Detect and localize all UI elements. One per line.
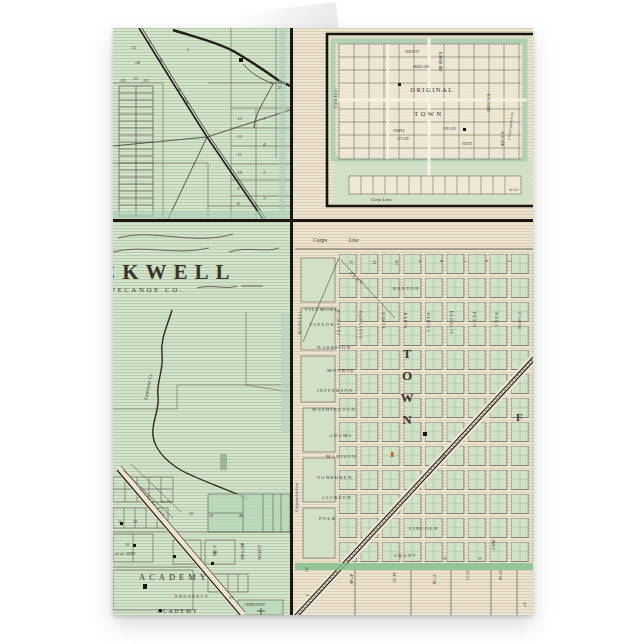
creek-name-label: Lauramie Cr. bbox=[143, 373, 154, 401]
letter-f-label: F bbox=[516, 411, 523, 423]
block-number: 10 bbox=[394, 260, 399, 265]
street-name: LINCOLN bbox=[409, 526, 438, 531]
sec-cor-label: Sec Cor bbox=[161, 500, 173, 504]
street-name: VANBUREN bbox=[317, 475, 353, 480]
section-number: 3 bbox=[263, 170, 266, 175]
section-numbers: 25 24 22 5 6 13 12 11 10 9 8 1 4 3 7 bbox=[131, 45, 266, 206]
section-number: 1 bbox=[263, 116, 265, 121]
town-letter: O bbox=[402, 368, 412, 383]
horner-add-label: HORNER ADD bbox=[438, 52, 442, 72]
lot-number: 39 bbox=[133, 519, 138, 524]
court-label: COURT bbox=[492, 539, 496, 550]
town-grid-drawing: Corpn Line Corporation Line CLAY BENTON … bbox=[293, 222, 533, 615]
long-lot-ladder bbox=[119, 86, 153, 216]
boundary-band-right bbox=[279, 28, 286, 211]
street-name: JEFFERSON bbox=[317, 388, 354, 393]
stockwell-map-drawing: CKWELL PECANOE CO. Lauramie Cr. bbox=[113, 222, 290, 615]
map-panel-town-grid: Corpn Line Corporation Line CLAY BENTON … bbox=[293, 222, 533, 615]
lot-number: 20 bbox=[304, 567, 309, 572]
town-letter: T bbox=[403, 346, 412, 361]
panel-divider-horizontal bbox=[113, 219, 533, 222]
street-name: MADISON bbox=[326, 454, 357, 459]
street-name: MAPLE bbox=[517, 311, 522, 329]
street-name: TENTH bbox=[381, 311, 386, 328]
lot-number: 34 35 bbox=[392, 572, 397, 583]
south-add-strip bbox=[349, 176, 521, 194]
south-boundary-band bbox=[295, 563, 533, 570]
lot-number: 10 bbox=[125, 542, 130, 547]
lot-number: 19 18 bbox=[498, 570, 503, 581]
justus-add-label: JUSTUS ADD bbox=[486, 94, 490, 113]
section-number: 22 bbox=[133, 76, 138, 81]
lot-number: 17 bbox=[522, 602, 527, 607]
county-subtitle: PECANOE CO. bbox=[113, 286, 184, 294]
second-add-label: 2ND ADD bbox=[443, 127, 457, 131]
street-name: FILLMORE bbox=[305, 307, 339, 312]
moon-add-label: MOON ADD bbox=[413, 65, 430, 69]
card-product-photo: E. & L. R.W. Cen Sec 32 AVE AVE 25 24 22… bbox=[0, 0, 644, 644]
section-number: 10 bbox=[237, 170, 242, 175]
south-label: SOUTH bbox=[462, 142, 473, 146]
corporation-line-left: Corporation Line bbox=[294, 482, 299, 512]
building-square bbox=[239, 58, 243, 62]
section-number: 11 bbox=[237, 152, 241, 157]
street-name: ELEVENTH bbox=[358, 310, 363, 337]
street-name: MANSELL bbox=[297, 310, 302, 335]
section-number: 8 bbox=[237, 201, 240, 206]
railroad-diagonal bbox=[117, 464, 245, 615]
section-number: 12 bbox=[237, 134, 242, 139]
town-letter: N bbox=[402, 412, 412, 427]
street-name: JACKSON bbox=[322, 495, 352, 500]
first-add-label: 1ST ADD bbox=[397, 137, 410, 141]
section-lines bbox=[113, 312, 290, 409]
township-map-drawing: E. & L. R.W. Cen Sec 32 AVE AVE 25 24 22… bbox=[113, 28, 290, 219]
red-building-mark bbox=[391, 452, 394, 457]
street-name: TAYLOR bbox=[309, 322, 335, 327]
panel-divider-vertical bbox=[290, 28, 293, 615]
section-number: 7 bbox=[263, 196, 266, 201]
temple-add-label: TEMPLE bbox=[393, 129, 405, 133]
north-st-label: NORTH ST bbox=[405, 50, 420, 54]
building-square bbox=[423, 432, 427, 436]
just-add-label: JUST ADD bbox=[500, 132, 504, 147]
street-name: SEVENTH bbox=[449, 310, 454, 334]
stream bbox=[173, 30, 290, 86]
lot-number: 23 bbox=[189, 511, 193, 516]
town-letter: W bbox=[401, 390, 414, 405]
section-number: 25 bbox=[131, 45, 136, 50]
cicero-st-label: CICERO ST bbox=[258, 545, 262, 560]
cen-sec-number: 32 bbox=[277, 85, 281, 90]
st-label: ST bbox=[443, 557, 447, 561]
map-panel-stockwell: CKWELL PECANOE CO. Lauramie Cr. bbox=[113, 222, 290, 615]
street-name: FIFTH bbox=[494, 311, 499, 326]
section-number: 5 bbox=[187, 47, 190, 52]
street-name: EIGHTH bbox=[426, 312, 431, 332]
town-title: CKWELL bbox=[113, 260, 237, 284]
lot-number: 47 46 bbox=[349, 574, 354, 585]
corp-line-bottom: Corp Line bbox=[371, 197, 392, 202]
sub-add-label: SUB & ADD bbox=[241, 542, 245, 560]
st-label: ST bbox=[478, 557, 482, 561]
lot-number: 20 21 bbox=[465, 570, 470, 580]
card-back-flap bbox=[121, 2, 338, 28]
original-town-drawing: ORIGINAL TOWN Corp Line Corporation Line… bbox=[293, 28, 533, 219]
hatched-lot bbox=[220, 454, 227, 470]
greeting-card-front[interactable]: E. & L. R.W. Cen Sec 32 AVE AVE 25 24 22… bbox=[113, 28, 533, 615]
block-number: 12 bbox=[349, 260, 354, 265]
lauramie-creek bbox=[153, 310, 248, 499]
prospect-st-label: PROSPECT bbox=[175, 594, 209, 599]
ave-label: AVE bbox=[120, 79, 126, 83]
street-name: ADAMS bbox=[329, 433, 352, 438]
street-name: BENTON bbox=[393, 286, 420, 291]
sec-cor-label: Sec Cor bbox=[509, 188, 519, 192]
lot-number: 50 bbox=[213, 550, 218, 555]
original-town-title-1: ORIGINAL bbox=[410, 86, 453, 93]
boundary-band-right bbox=[281, 312, 290, 432]
boundary-band-bottom bbox=[113, 211, 290, 219]
et-al-add-label: et al ADD bbox=[115, 551, 136, 556]
academy-label-large: ACADEMY bbox=[139, 572, 210, 582]
corp-line-top-1: Corpn bbox=[313, 237, 327, 243]
ave-label: AVE bbox=[143, 79, 149, 83]
original-town-title-2: TOWN bbox=[414, 110, 443, 117]
lot-number: 37 38 bbox=[432, 574, 437, 585]
building-square bbox=[398, 83, 401, 86]
corp-line-left: Corp Line bbox=[333, 90, 338, 108]
section-number: 13 bbox=[237, 116, 242, 121]
building-square bbox=[463, 128, 466, 131]
street-name: SIXTH bbox=[472, 311, 477, 327]
cemetery-label: CEMETERY bbox=[244, 602, 265, 607]
street-name: MONROE bbox=[327, 368, 355, 373]
corp-line-top-2: Line bbox=[348, 237, 359, 243]
street-name: NINTH bbox=[403, 312, 408, 328]
street-name: HARRISON bbox=[317, 345, 351, 350]
street-name: POLK bbox=[319, 516, 336, 521]
section-number: 24 bbox=[135, 60, 140, 65]
street-name: WASHINGTON bbox=[312, 407, 356, 412]
street-name: GRANT bbox=[394, 553, 417, 558]
block-number: 11 bbox=[372, 260, 377, 264]
street-name: FRANKLIN bbox=[336, 309, 341, 336]
city-blocks-grid bbox=[339, 254, 533, 563]
map-panel-original-town: ORIGINAL TOWN Corp Line Corporation Line… bbox=[293, 28, 533, 219]
section-number: 9 bbox=[237, 186, 240, 191]
academy-label-small: ACADEMY bbox=[157, 608, 199, 614]
map-panel-township: E. & L. R.W. Cen Sec 32 AVE AVE 25 24 22… bbox=[113, 28, 290, 219]
